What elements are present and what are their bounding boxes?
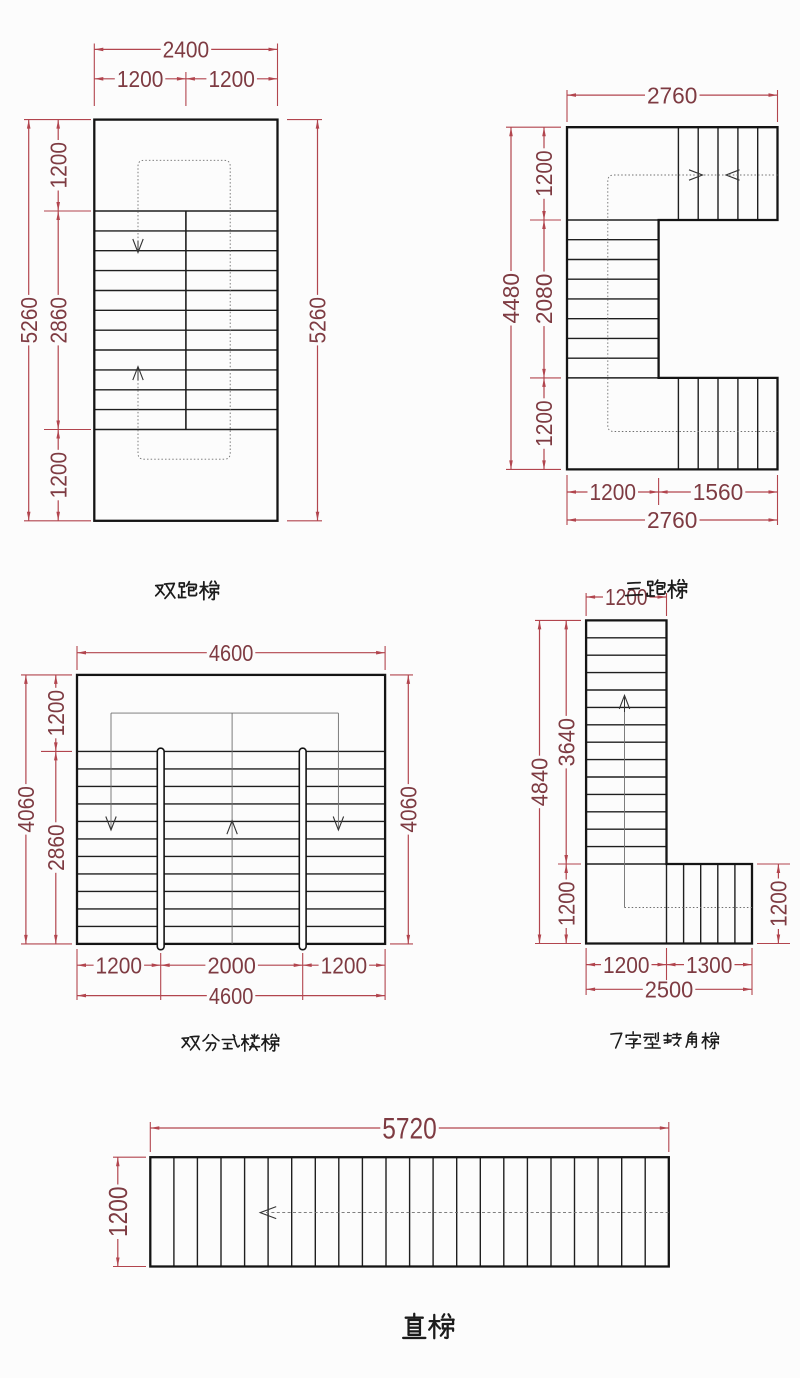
svg-text:2860: 2860 xyxy=(45,297,71,344)
svg-text:2760: 2760 xyxy=(647,507,698,533)
svg-text:4840: 4840 xyxy=(527,758,553,807)
svg-text:1200: 1200 xyxy=(43,690,69,737)
svg-text:1200: 1200 xyxy=(117,66,164,92)
svg-text:1200: 1200 xyxy=(103,1187,133,1238)
svg-text:1200: 1200 xyxy=(603,952,650,978)
svg-text:1300: 1300 xyxy=(686,952,733,978)
svg-text:1560: 1560 xyxy=(693,479,744,505)
svg-text:5720: 5720 xyxy=(382,1113,437,1146)
svg-text:4060: 4060 xyxy=(396,786,422,833)
svg-text:1200: 1200 xyxy=(96,952,143,978)
svg-text:5260: 5260 xyxy=(16,297,42,344)
svg-text:2500: 2500 xyxy=(645,977,694,1003)
svg-text:4600: 4600 xyxy=(209,640,254,666)
svg-text:2000: 2000 xyxy=(207,952,256,978)
svg-text:2860: 2860 xyxy=(43,824,69,871)
svg-text:1200: 1200 xyxy=(45,142,71,189)
svg-text:5260: 5260 xyxy=(305,297,331,344)
svg-text:2760: 2760 xyxy=(647,82,698,108)
svg-text:1200: 1200 xyxy=(531,400,557,447)
svg-text:1200: 1200 xyxy=(45,452,71,499)
svg-text:1200: 1200 xyxy=(553,882,579,927)
svg-text:1200: 1200 xyxy=(590,479,637,505)
svg-text:4060: 4060 xyxy=(13,786,39,833)
svg-text:2400: 2400 xyxy=(163,37,210,63)
svg-text:1200: 1200 xyxy=(321,952,368,978)
svg-text:1200: 1200 xyxy=(605,584,648,610)
svg-text:1200: 1200 xyxy=(208,66,255,92)
svg-text:1200: 1200 xyxy=(531,150,557,197)
svg-text:4600: 4600 xyxy=(209,983,254,1009)
svg-text:3640: 3640 xyxy=(553,718,579,767)
svg-text:2080: 2080 xyxy=(531,274,557,325)
svg-text:1200: 1200 xyxy=(766,881,792,928)
svg-text:4480: 4480 xyxy=(498,273,524,324)
